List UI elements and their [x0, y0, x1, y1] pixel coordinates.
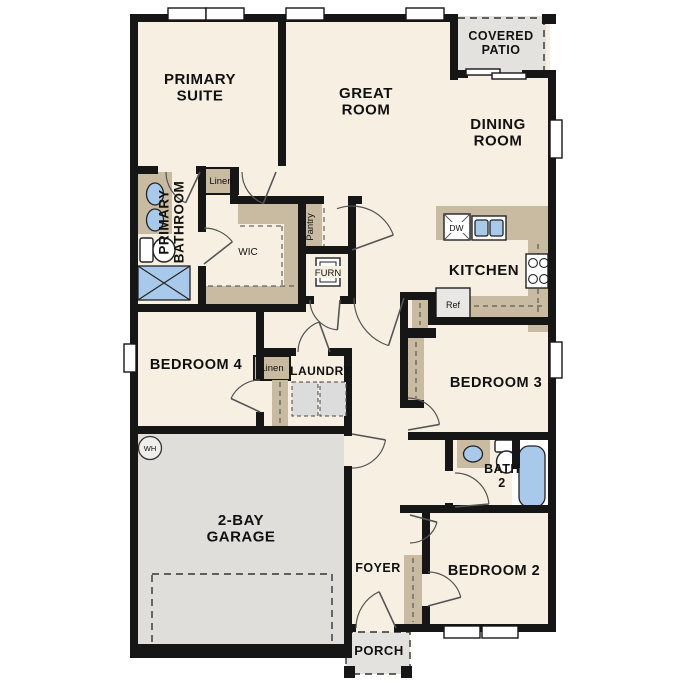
floor-plan: WH DW Ref FURN: [0, 0, 687, 687]
room-label-great-room: GREATROOM: [339, 85, 393, 119]
label-pantry: Pantry: [305, 213, 316, 241]
refrigerator-label: Ref: [446, 300, 461, 310]
opt-dryer-box: [292, 382, 318, 416]
window-primary-suite-2: [206, 8, 244, 20]
dishwasher: DW: [444, 214, 470, 240]
window-bedroom3: [550, 342, 562, 378]
window-great-room: [286, 8, 324, 20]
window-primary-suite-1: [168, 8, 206, 20]
label-wic: WIC: [238, 247, 257, 258]
shower: [138, 266, 190, 300]
stove: [526, 254, 548, 288]
window-bedroom2-2: [482, 626, 518, 638]
room-label-bedroom-3: BEDROOM 3: [450, 375, 542, 391]
room-label-foyer: FOYER: [355, 561, 401, 575]
furnace-label: FURN: [315, 268, 342, 279]
window-top-right: [406, 8, 444, 20]
label-linen-hall: Linen: [260, 363, 283, 374]
room-label-bedroom-4: BEDROOM 4: [150, 357, 242, 373]
water-heater-label: WH: [144, 444, 157, 453]
room-label-primary-bathroom: PRIMARYBATHROOM: [157, 181, 187, 264]
wic-shelf-right: [284, 224, 298, 286]
window-bedroom4: [124, 344, 136, 372]
room-label-dining-room: DININGROOM: [470, 116, 526, 150]
room-label-porch: PORCH: [354, 643, 403, 658]
furnace: FURN: [312, 258, 344, 286]
room-label-kitchen: KITCHEN: [449, 262, 519, 279]
opt-washer-box: [320, 382, 346, 416]
room-label-laundry: LAUNDRY: [290, 364, 352, 378]
kitchen-sink: [472, 216, 506, 240]
patio-slider-panel-2: [492, 73, 526, 79]
water-heater: WH: [139, 437, 162, 460]
bath2-sink: [464, 446, 483, 462]
room-label-bedroom-2: BEDROOM 2: [448, 563, 540, 579]
dishwasher-label: DW: [449, 223, 463, 233]
kitchen-counter-bottom: [470, 296, 548, 318]
label-linen-top: Linen: [209, 176, 232, 187]
window-dining: [550, 120, 562, 158]
floor-plan-page: WH DW Ref FURN: [0, 0, 687, 687]
window-bedroom2-1: [444, 626, 480, 638]
wic-shelf-top: [238, 204, 298, 224]
wic-shelf-bottom: [206, 286, 298, 304]
refrigerator: Ref: [436, 288, 470, 320]
